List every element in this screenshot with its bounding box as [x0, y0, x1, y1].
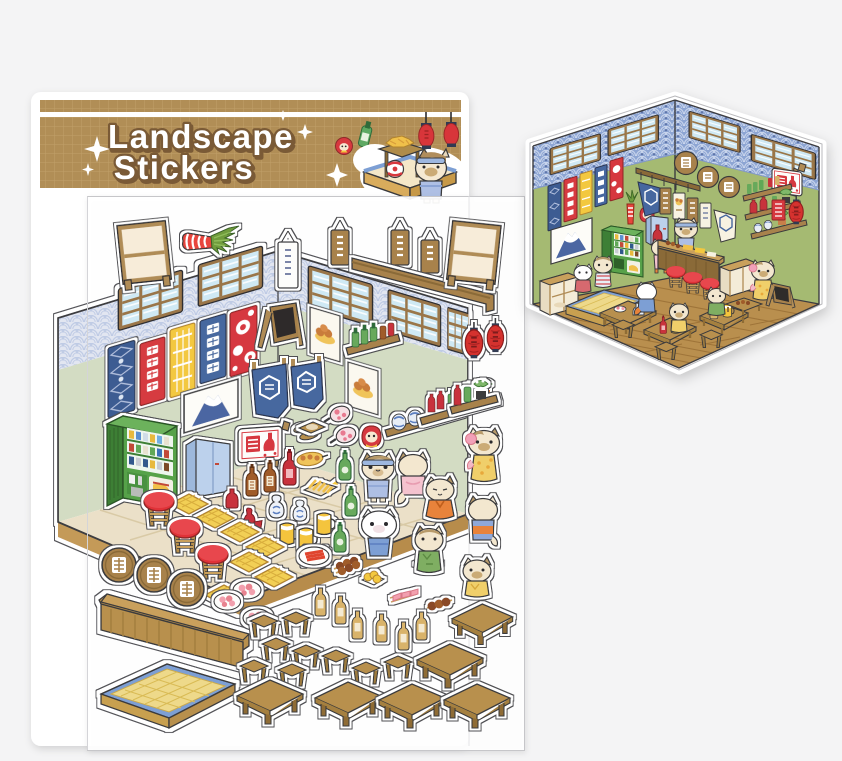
svg-text:Stickers: Stickers	[114, 149, 254, 186]
